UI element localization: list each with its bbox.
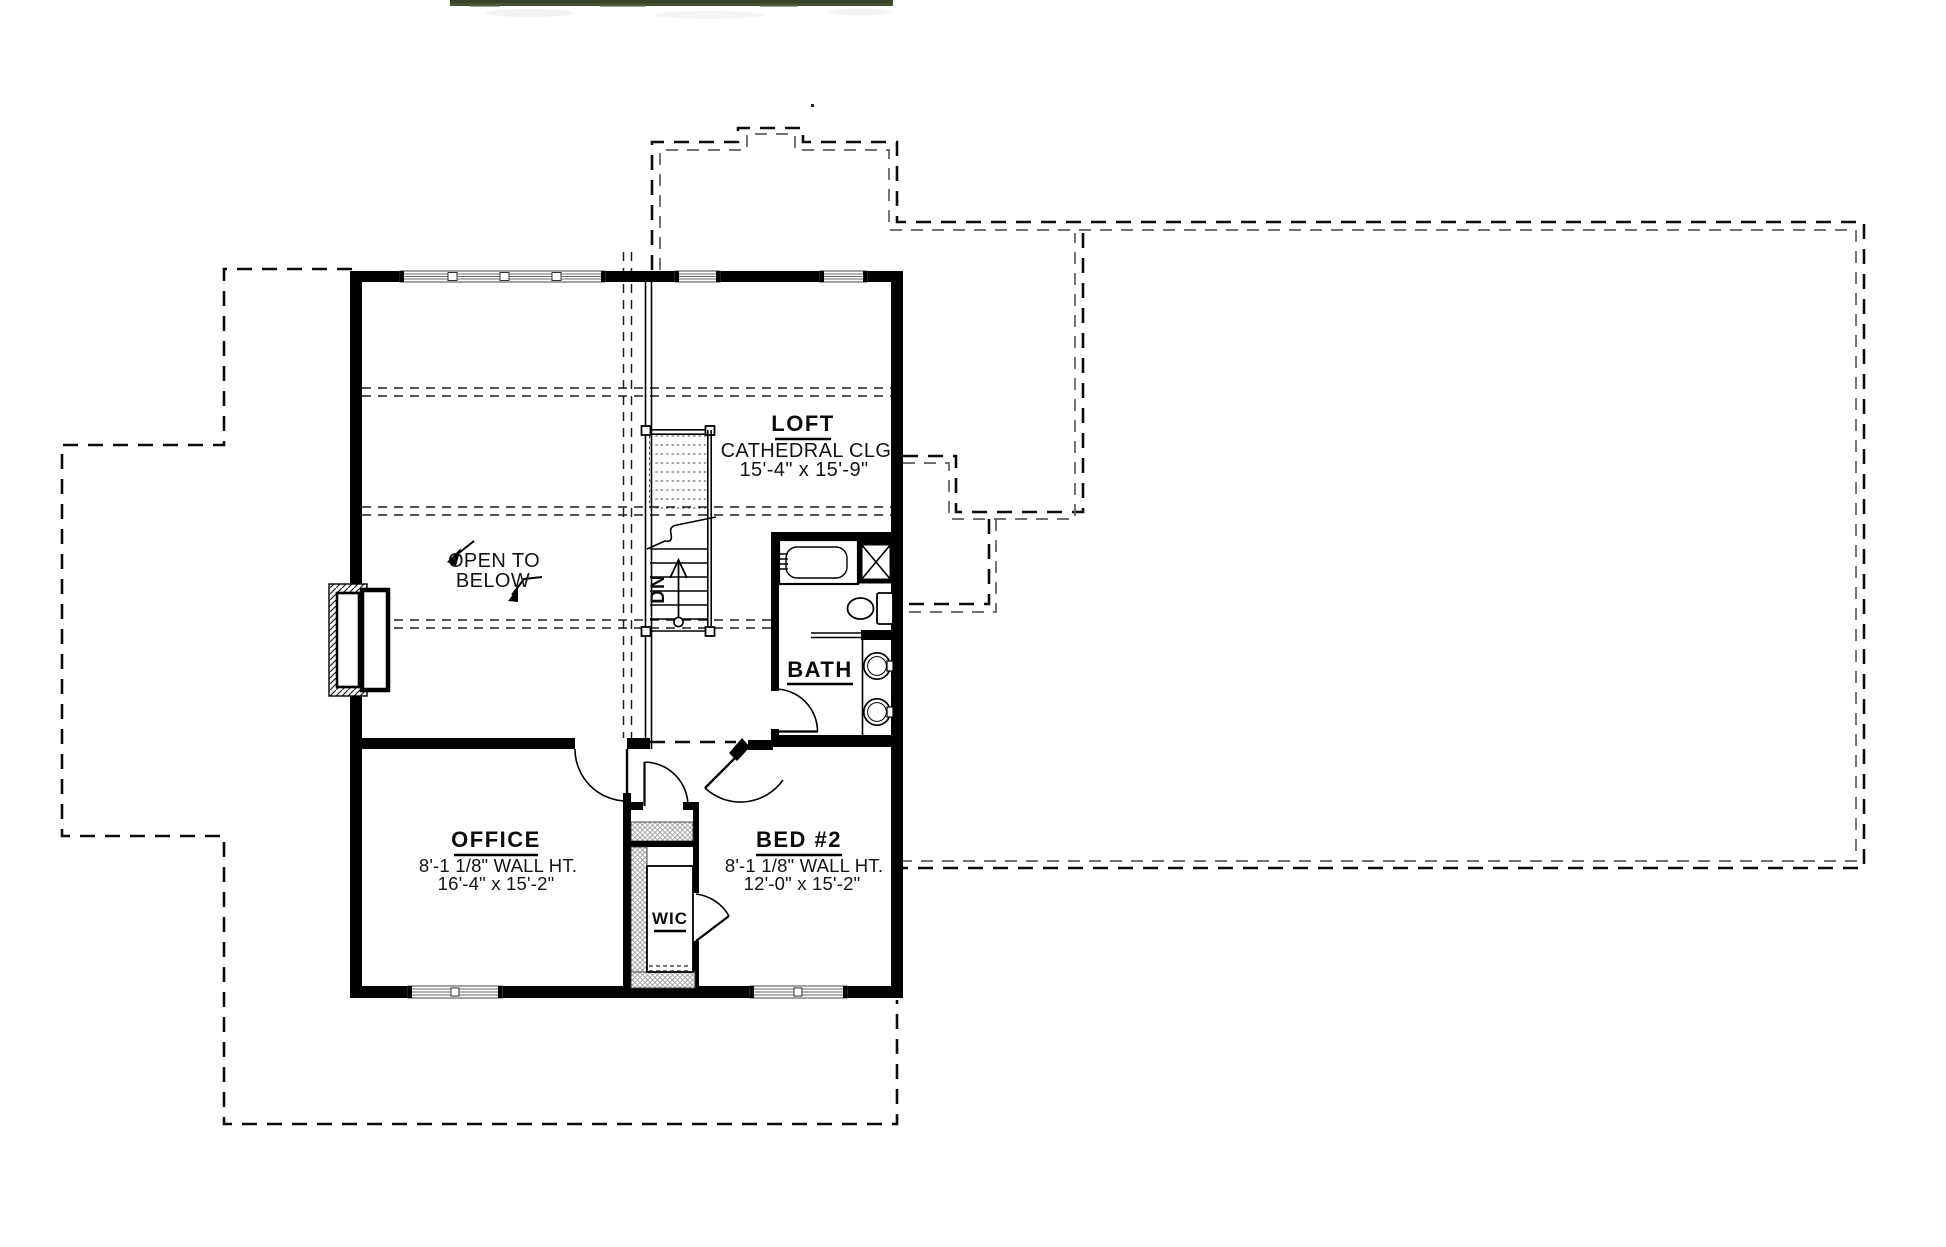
bed2-door [705,751,783,802]
bed2-dims-label: 12'-0" x 15'-2" [744,873,861,894]
sink-icon [864,699,893,725]
hall-closet-door [645,762,689,806]
open-to-below-label: OPEN TO [448,550,540,572]
bed2-label: BED #2 [756,827,842,852]
interior-walls [362,532,903,990]
bathtub-icon [779,540,858,584]
window [675,271,720,282]
loft-label: LOFT [771,411,834,436]
floor-plan-page: DN [0,0,1946,1247]
shower-icon [860,543,892,581]
labels: LOFT CATHEDRAL CLG 15'-4" x 15'-9" OPEN … [419,411,892,931]
office-dims-label: 16'-4" x 15'-2" [438,873,555,894]
stair-dn-label: DN [648,574,669,603]
sink-icon [864,653,893,679]
open-to-below-label: BELOW [456,570,530,592]
bath-label: BATH [787,657,852,682]
window [400,271,605,282]
stray-dot [811,104,814,107]
office-door [575,749,627,801]
floor-plan-drawing: DN [0,0,1946,1247]
grass-strip [450,0,893,19]
loft-dims-label: 15'-4" x 15'-9" [739,459,868,481]
toilet-icon [848,593,894,624]
bath-door [775,689,818,732]
office-label: OFFICE [451,827,541,852]
wic-door [696,894,729,941]
wic-label: WIC [652,909,688,928]
chimney-icon [329,584,388,696]
window [750,986,847,998]
window [820,271,867,282]
window [408,986,502,998]
stair-direction-arrow [670,560,687,627]
